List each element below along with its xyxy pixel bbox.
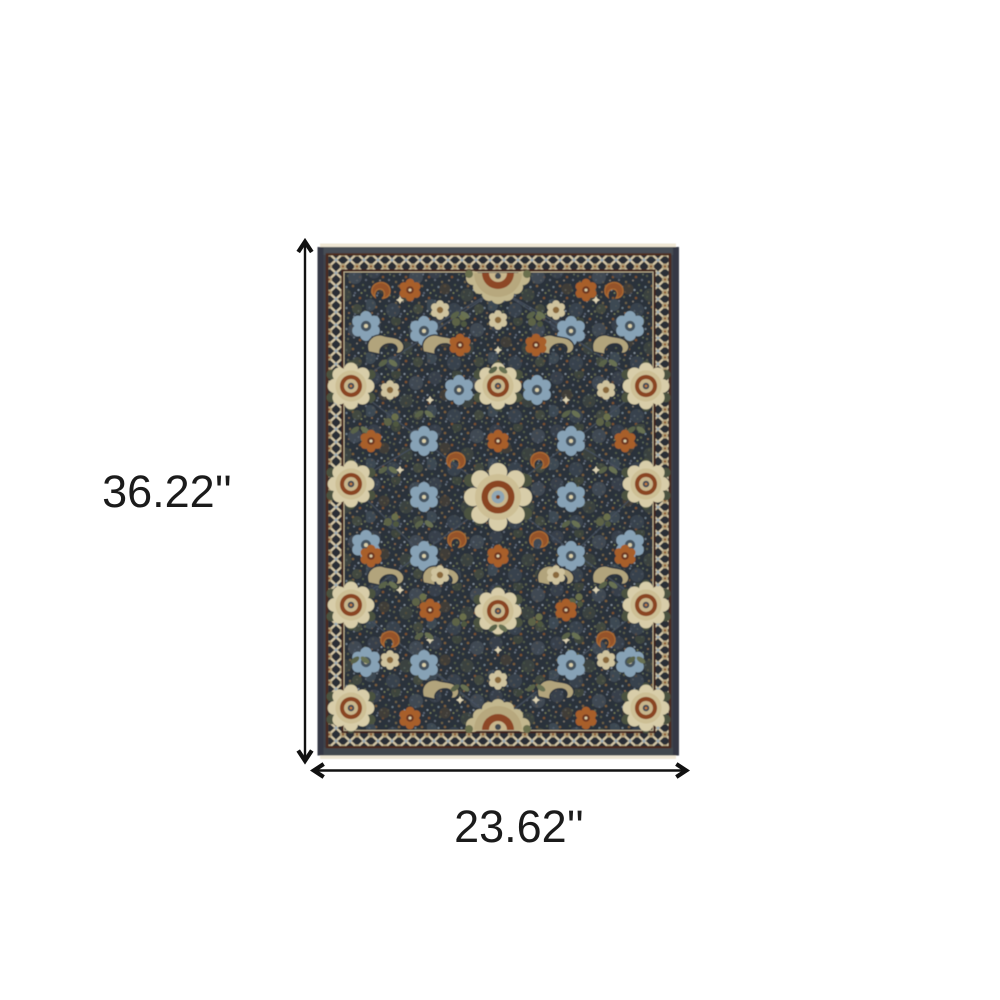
svg-text:23.62'': 23.62''	[454, 801, 584, 852]
svg-text:36.22'': 36.22''	[102, 466, 232, 517]
